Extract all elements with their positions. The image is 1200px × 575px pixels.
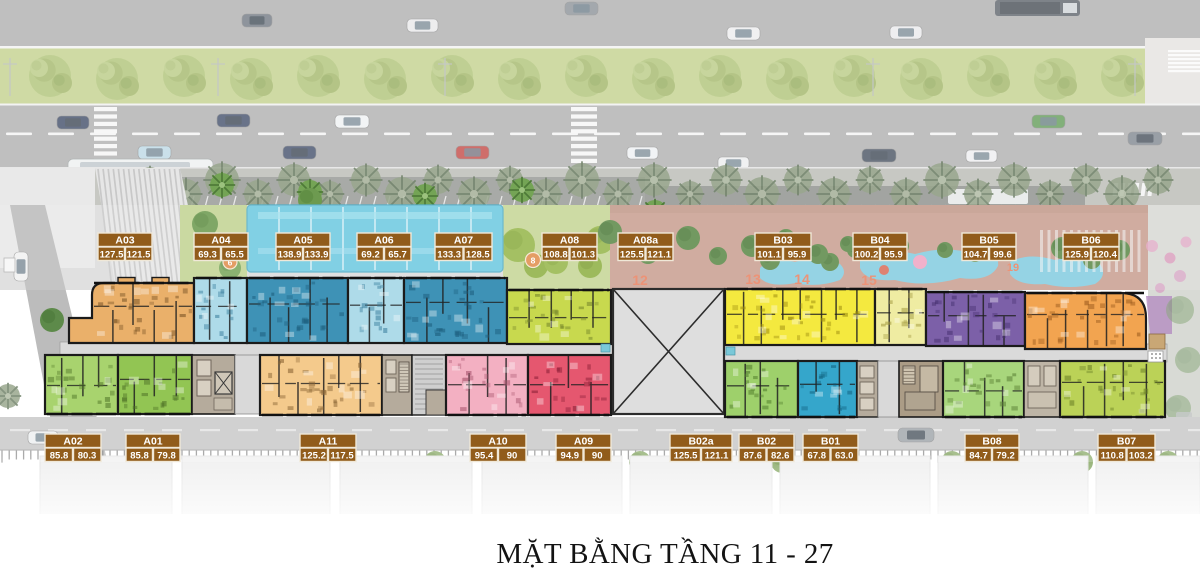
svg-text:A09: A09 <box>574 435 593 447</box>
svg-text:15: 15 <box>861 272 877 288</box>
svg-text:69.3: 69.3 <box>198 249 217 260</box>
svg-text:101.3: 101.3 <box>571 249 595 260</box>
svg-text:B06: B06 <box>1081 234 1100 246</box>
svg-text:84.7: 84.7 <box>969 450 988 461</box>
svg-text:14: 14 <box>794 271 810 287</box>
svg-text:A11: A11 <box>319 435 338 447</box>
svg-text:79.2: 79.2 <box>996 450 1015 461</box>
svg-text:19: 19 <box>1007 262 1019 274</box>
svg-text:101.1: 101.1 <box>757 249 781 260</box>
svg-text:133.9: 133.9 <box>305 249 329 260</box>
svg-text:125.9: 125.9 <box>1065 249 1089 260</box>
svg-text:127.5: 127.5 <box>100 249 124 260</box>
svg-text:100.2: 100.2 <box>855 249 879 260</box>
svg-text:B05: B05 <box>979 234 998 246</box>
svg-text:A05: A05 <box>293 234 312 246</box>
svg-text:121.5: 121.5 <box>127 249 151 260</box>
svg-text:80.3: 80.3 <box>78 450 97 461</box>
svg-text:69.2: 69.2 <box>361 249 380 260</box>
svg-text:A08: A08 <box>560 234 579 246</box>
svg-text:B07: B07 <box>1117 435 1136 447</box>
svg-text:B02a: B02a <box>688 435 713 447</box>
svg-text:B08: B08 <box>982 435 1001 447</box>
svg-text:90: 90 <box>507 450 518 461</box>
svg-text:A07: A07 <box>454 234 473 246</box>
svg-text:120.4: 120.4 <box>1093 249 1117 260</box>
svg-text:95.9: 95.9 <box>884 249 903 260</box>
svg-text:MẶT BẰNG TẦNG 11 - 27: MẶT BẰNG TẦNG 11 - 27 <box>496 536 833 570</box>
svg-text:82.6: 82.6 <box>771 450 790 461</box>
svg-text:79.8: 79.8 <box>157 450 176 461</box>
svg-text:65.7: 65.7 <box>388 249 407 260</box>
svg-text:99.6: 99.6 <box>993 249 1012 260</box>
svg-text:67.8: 67.8 <box>808 450 827 461</box>
svg-text:87.6: 87.6 <box>744 450 763 461</box>
svg-text:13: 13 <box>745 271 761 287</box>
svg-text:94.9: 94.9 <box>561 450 580 461</box>
svg-text:A03: A03 <box>115 234 134 246</box>
svg-text:B01: B01 <box>821 435 840 447</box>
svg-text:125.2: 125.2 <box>302 450 326 461</box>
svg-text:B04: B04 <box>870 234 889 246</box>
svg-text:B03: B03 <box>773 234 792 246</box>
svg-text:128.5: 128.5 <box>466 249 490 260</box>
svg-text:121.1: 121.1 <box>705 450 729 461</box>
svg-text:A04: A04 <box>211 234 230 246</box>
svg-text:A02: A02 <box>63 435 82 447</box>
svg-text:85.8: 85.8 <box>50 450 69 461</box>
svg-text:A06: A06 <box>374 234 393 246</box>
svg-text:125.5: 125.5 <box>674 450 698 461</box>
svg-text:117.5: 117.5 <box>330 450 354 461</box>
svg-text:104.7: 104.7 <box>964 249 988 260</box>
svg-text:A01: A01 <box>143 435 162 447</box>
svg-text:95.9: 95.9 <box>788 249 807 260</box>
svg-text:95.4: 95.4 <box>475 450 494 461</box>
svg-text:90: 90 <box>592 450 603 461</box>
svg-text:63.0: 63.0 <box>835 450 854 461</box>
svg-text:138.9: 138.9 <box>278 249 302 260</box>
svg-text:A08a: A08a <box>633 234 658 246</box>
svg-text:125.5: 125.5 <box>620 249 644 260</box>
svg-text:12: 12 <box>632 272 648 288</box>
svg-text:110.8: 110.8 <box>1101 450 1124 461</box>
svg-text:85.8: 85.8 <box>130 450 149 461</box>
svg-text:103.2: 103.2 <box>1129 450 1153 461</box>
svg-text:121.1: 121.1 <box>647 249 671 260</box>
svg-text:B02: B02 <box>757 435 776 447</box>
svg-text:65.5: 65.5 <box>225 249 244 260</box>
svg-text:A10: A10 <box>488 435 507 447</box>
svg-text:108.8: 108.8 <box>544 249 568 260</box>
svg-text:133.3: 133.3 <box>437 249 461 260</box>
